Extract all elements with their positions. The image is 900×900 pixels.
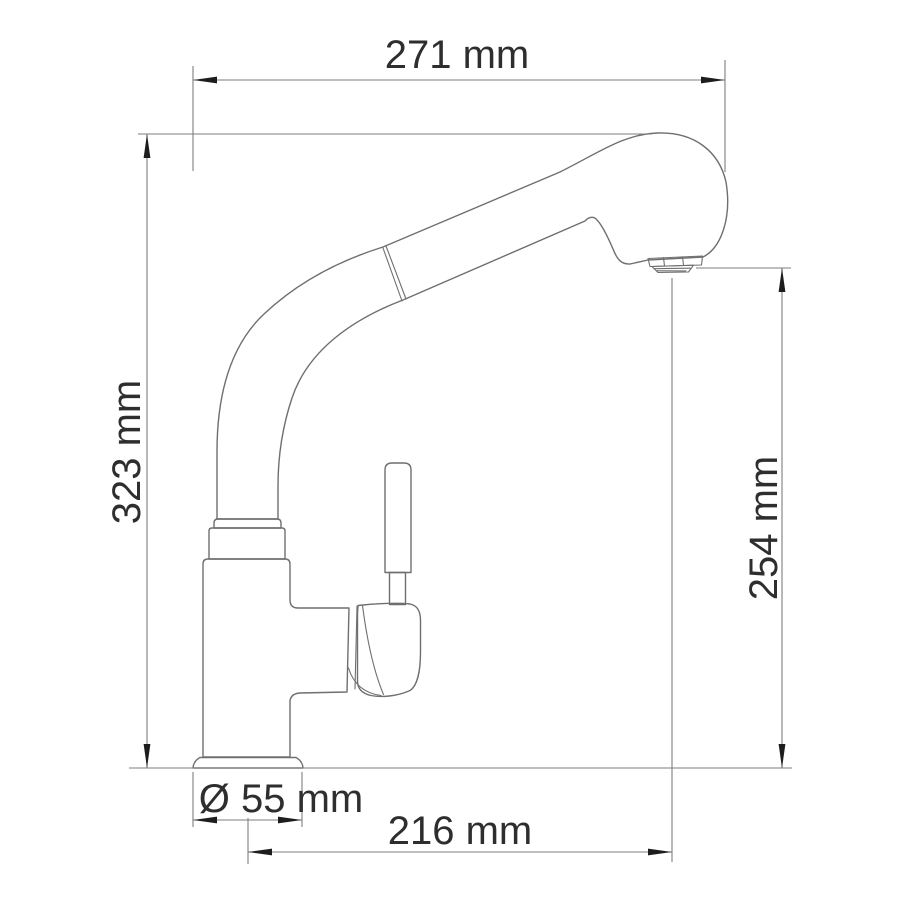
spout-seam-line-front <box>383 248 402 301</box>
faucet-technical-drawing: 271 mm 323 mm 254 mm Ø 55 mm 216 mm <box>0 0 900 900</box>
dim-arrow-right <box>648 849 672 856</box>
dimension-outlet-height: 254 mm <box>696 268 791 768</box>
label-outlet-height: 254 mm <box>742 456 786 601</box>
dim-arrow-right <box>701 77 725 84</box>
dim-arrow-down <box>144 744 151 768</box>
spout-neck-and-head-outline <box>217 133 728 519</box>
handle-base-crease <box>363 606 384 695</box>
base-body <box>203 559 349 757</box>
dim-arrow-up <box>144 134 151 158</box>
dim-arrow-up <box>779 268 786 292</box>
label-spout-reach: 216 mm <box>388 809 533 853</box>
handle-base <box>358 603 421 696</box>
neck-ring <box>214 519 281 528</box>
dimension-overall-height: 323 mm <box>105 134 652 768</box>
dimension-base-diameter: Ø 55 mm <box>193 772 363 827</box>
label-overall-height: 323 mm <box>105 380 149 525</box>
base-flange <box>193 758 303 769</box>
spout-seam-line-back <box>386 246 406 299</box>
handle-joint-line <box>355 606 357 689</box>
label-overall-width: 271 mm <box>385 33 530 77</box>
handle-lever <box>385 463 411 573</box>
faucet-figure <box>193 133 728 768</box>
neck-collar <box>209 528 285 559</box>
dim-arrow-down <box>779 744 786 768</box>
aerator-disc-detail-1 <box>654 268 691 269</box>
handle-stem <box>390 573 406 605</box>
label-base-diameter: Ø 55 mm <box>199 777 363 821</box>
dim-arrow-left <box>248 849 272 856</box>
dimension-overall-width: 271 mm <box>193 33 725 172</box>
dim-arrow-left <box>193 77 217 84</box>
